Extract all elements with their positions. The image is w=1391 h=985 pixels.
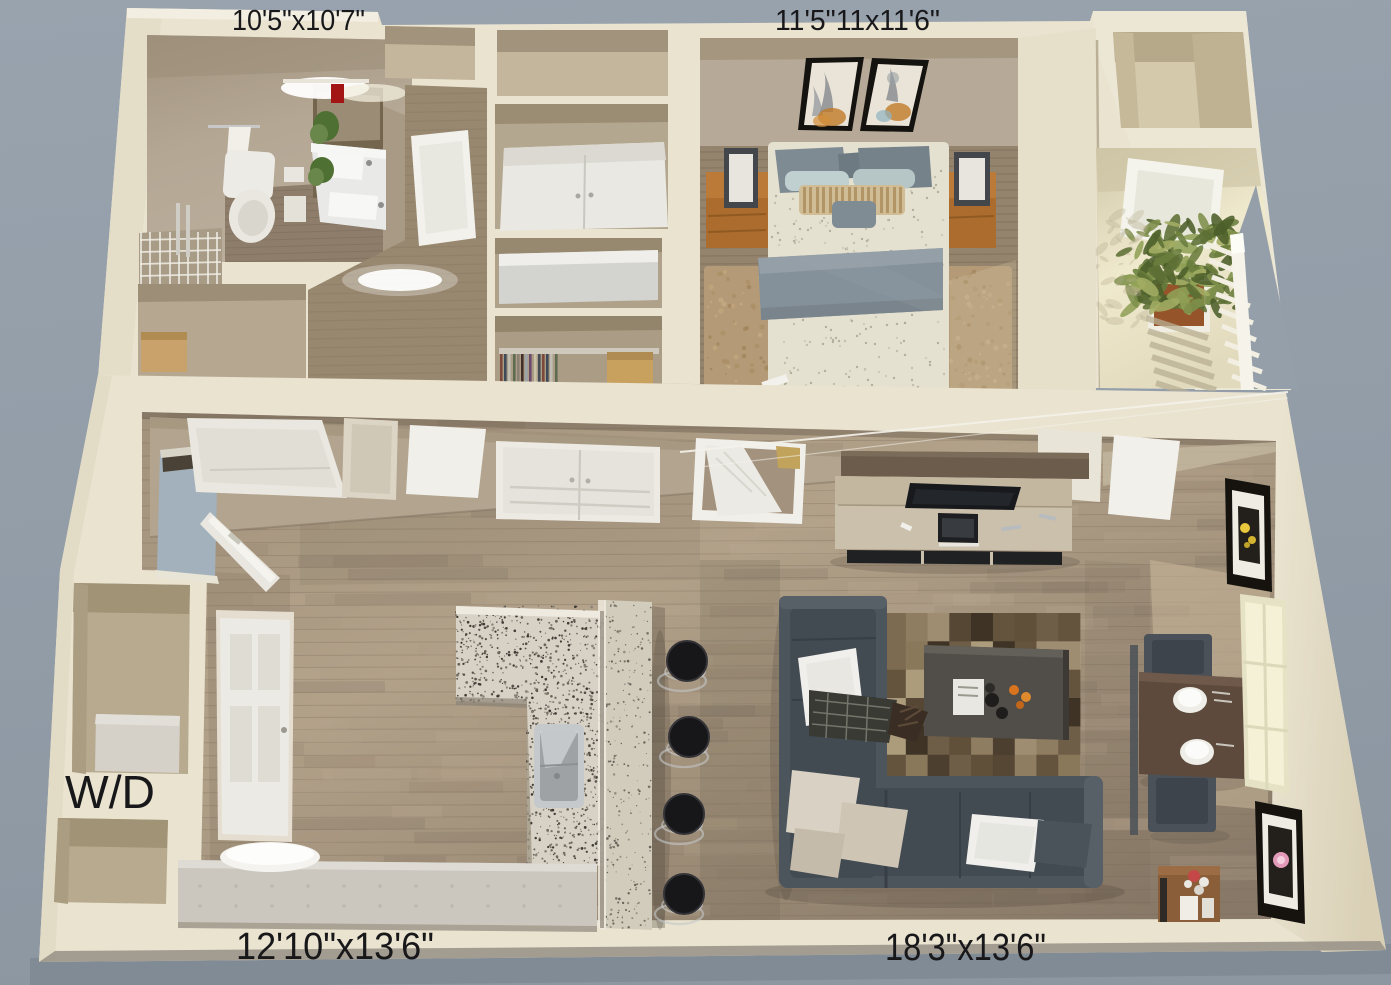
- svg-text:18'3"x13'6": 18'3"x13'6": [885, 927, 1046, 969]
- svg-text:12'10"x13'6": 12'10"x13'6": [236, 926, 434, 968]
- svg-text:W/D: W/D: [65, 766, 155, 818]
- svg-text:11'5"11x11'6": 11'5"11x11'6": [775, 5, 940, 37]
- svg-text:10'5"x10'7": 10'5"x10'7": [232, 5, 365, 37]
